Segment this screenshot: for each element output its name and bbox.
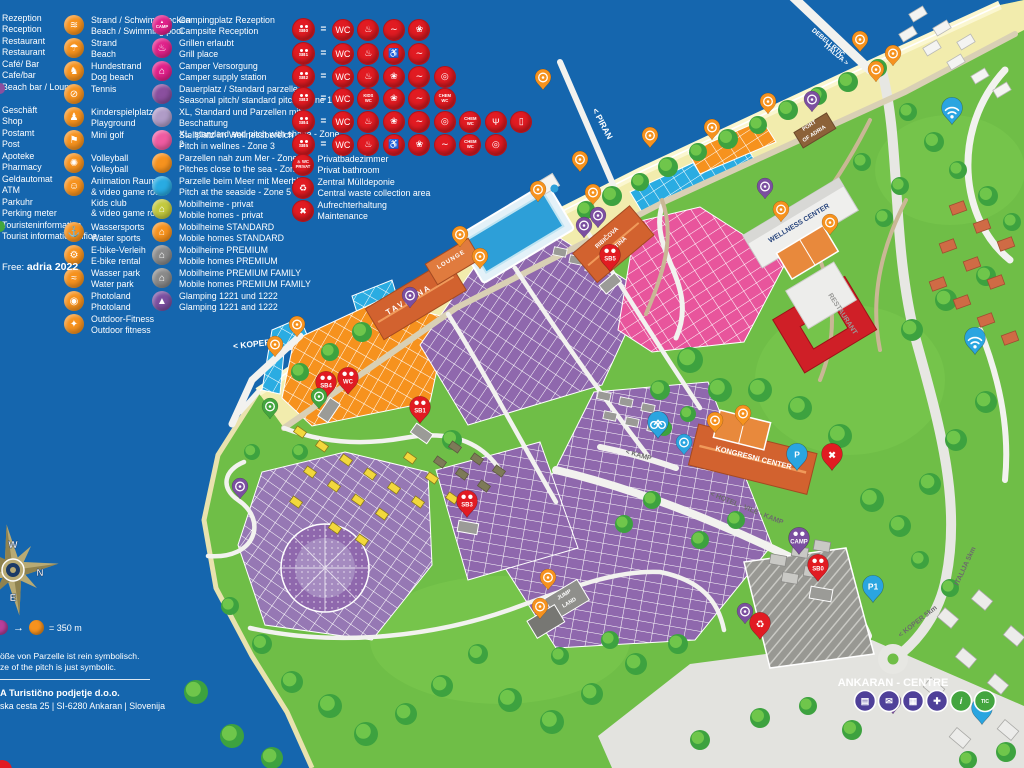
sanitary-row-sb2: SB2=WC♨❀∼◎ bbox=[292, 65, 456, 88]
big-tent bbox=[281, 524, 369, 612]
compass-w: W bbox=[8, 540, 18, 551]
dog-beach-icon: ♞ bbox=[64, 61, 84, 81]
wash-icon: ❀ bbox=[383, 111, 405, 133]
legend-item-label: Zentral Mülldeponie Central waste collec… bbox=[318, 177, 468, 199]
water-sports-icon: ⚓ bbox=[64, 222, 84, 242]
zone1-icon bbox=[152, 84, 172, 104]
wc-icon: WC bbox=[332, 19, 354, 41]
equals-sign: = bbox=[321, 139, 327, 150]
legend-item-waste-collection: ♻Zentral Mülldeponie Central waste colle… bbox=[292, 177, 468, 199]
legend-item-label: Glamping 1221 und 1222 Glamping 1221 and… bbox=[179, 291, 344, 313]
camp-map-page: < PIRAN< KOPERDEBELI RTIČITALIJA >PORTOF… bbox=[0, 0, 1024, 768]
legend-item-maintenance: ✖Aufrechterhaltung Maintenance bbox=[292, 200, 468, 222]
wc-icon: WC bbox=[332, 88, 354, 110]
svg-text:SB3: SB3 bbox=[461, 503, 473, 509]
waste-collection-icon: ♻ bbox=[292, 177, 314, 199]
laundry-icon: ◎ bbox=[434, 66, 456, 88]
svg-text:✖: ✖ bbox=[828, 450, 836, 461]
svg-text:WC: WC bbox=[343, 380, 354, 386]
legend-item-label: Aufrechterhaltung Maintenance bbox=[318, 200, 468, 222]
wash-icon: ❀ bbox=[383, 88, 405, 110]
private-bathroom-icon: ♨ WCPRIVAT bbox=[292, 154, 314, 176]
sanitary-row-sb3: SB3=WCKIDSWC❀∼CHEMWC bbox=[292, 87, 456, 110]
zone4-icon bbox=[152, 153, 172, 173]
mh-premium-family-icon: ⌂ bbox=[152, 268, 172, 288]
sanitary-row-sb0: SB0=WC♨∼❀ bbox=[292, 18, 430, 41]
svg-text:SB5: SB5 bbox=[604, 257, 616, 263]
svg-text:✉: ✉ bbox=[885, 696, 893, 706]
pharmacy-icon: ✚ bbox=[927, 691, 948, 712]
kids-club-icon: ☺ bbox=[64, 176, 84, 196]
wc-icon: WC bbox=[332, 66, 354, 88]
sink-icon: ∼ bbox=[408, 66, 430, 88]
minigolf-icon: ⚑ bbox=[64, 130, 84, 150]
maintenance-icon: ✖ bbox=[292, 200, 314, 222]
compass-n: N bbox=[36, 568, 43, 579]
legend-item-label: Mobilheime PREMIUM Mobile homes PREMIUM bbox=[179, 245, 344, 267]
wc-icon: WC bbox=[332, 111, 354, 133]
legend-item-mh-premium-family: ⌂Mobilheime PREMIUM FAMILY Mobile homes … bbox=[152, 268, 344, 290]
legend-item-outdoor-fitness: ✦Outdoor-Fitness Outdoor fitness bbox=[64, 314, 256, 336]
sink-icon: ∼ bbox=[408, 111, 430, 133]
mh-privat-icon: ⌂ bbox=[152, 199, 172, 219]
svg-text:TIC: TIC bbox=[981, 699, 989, 705]
chem-icon: CHEMWC bbox=[459, 134, 481, 156]
map-label-ankaran-centre: ANKARAN - CENTRE bbox=[838, 677, 949, 689]
svg-text:SB1: SB1 bbox=[414, 409, 426, 415]
laundry-icon: ◎ bbox=[485, 134, 507, 156]
chem-icon: CHEMWC bbox=[434, 88, 456, 110]
legend-item-label: Mobilheime PREMIUM FAMILY Mobile homes P… bbox=[179, 268, 344, 290]
svg-text:P: P bbox=[794, 450, 800, 460]
chem-icon: CHEMWC bbox=[459, 111, 481, 133]
accessible-icon: ♿ bbox=[383, 134, 405, 156]
scale-indicator: → = 350 m bbox=[0, 620, 82, 635]
svg-text:▦: ▦ bbox=[909, 696, 918, 706]
svg-text:SB0: SB0 bbox=[812, 567, 824, 573]
sanitary-row-sb4: SB4=WC♨❀∼◎CHEMWCΨ▯ bbox=[292, 110, 532, 133]
sink-icon: ∼ bbox=[408, 43, 430, 65]
volleyball-icon: ✺ bbox=[64, 153, 84, 173]
legend-item-label: Mobilheime STANDARD Mobile homes STANDAR… bbox=[179, 222, 344, 244]
sb1-legend-pin: SB1 bbox=[292, 42, 315, 65]
zone2-icon bbox=[152, 107, 172, 127]
scale-arrow: → bbox=[13, 622, 24, 634]
equals-sign: = bbox=[321, 116, 327, 127]
company-name: A Turistično podjetje d.o.o. bbox=[0, 687, 120, 698]
company-address: ska cesta 25 | SI-6280 Ankaran | Sloveni… bbox=[0, 701, 165, 711]
legend-item-label: Privatbadezimmer Privat bathroom bbox=[318, 154, 468, 176]
svg-text:✚: ✚ bbox=[933, 696, 941, 706]
fridge-icon: ▯ bbox=[510, 111, 532, 133]
sb5-legend-pin: SB5 bbox=[292, 133, 315, 156]
svg-text:▤: ▤ bbox=[861, 696, 870, 706]
legend-item-mh-premium: ⌂Mobilheime PREMIUM Mobile homes PREMIUM bbox=[152, 245, 344, 267]
legend-item-glamping: ▲Glamping 1221 und 1222 Glamping 1221 an… bbox=[152, 291, 344, 313]
atm-icon: ▤ bbox=[855, 691, 876, 712]
scale-text: = 350 m bbox=[49, 623, 82, 633]
camper-supply-icon: ⌂ bbox=[152, 61, 172, 81]
wash-icon: ❀ bbox=[408, 134, 430, 156]
tic-icon: TIC bbox=[975, 691, 996, 712]
svg-text:P1: P1 bbox=[868, 582, 879, 592]
disclaimer-de: öße von Parzelle ist rein symbolisch. bbox=[0, 651, 139, 662]
mh-standard-icon: ⌂ bbox=[152, 222, 172, 242]
beach-pool-icon: ≋ bbox=[64, 15, 84, 35]
camp-reception-icon: ▲CAMP bbox=[152, 15, 172, 35]
shower-icon: ♨ bbox=[357, 19, 379, 41]
accessible-icon: ♿ bbox=[383, 43, 405, 65]
sb0-legend-pin: SB0 bbox=[292, 18, 315, 41]
wash-icon: ❀ bbox=[408, 19, 430, 41]
tennis-icon: ⊘ bbox=[64, 84, 84, 104]
photoland-icon: ◉ bbox=[64, 291, 84, 311]
outdoor-fitness-icon: ✦ bbox=[64, 314, 84, 334]
shower-icon: ♨ bbox=[357, 111, 379, 133]
disclaimer-en: ze of the pitch is just symbolic. bbox=[0, 662, 139, 673]
zone5-icon bbox=[152, 176, 172, 196]
legend-item-label: Outdoor-Fitness Outdoor fitness bbox=[91, 314, 256, 336]
scale-start-dot bbox=[0, 620, 8, 635]
kids-icon: KIDSWC bbox=[357, 88, 379, 110]
disclaimer: öße von Parzelle ist rein symbolisch. ze… bbox=[0, 651, 139, 673]
shop-icon: ▦ bbox=[903, 691, 924, 712]
sb2-legend-pin: SB2 bbox=[292, 65, 315, 88]
shower-icon: ♨ bbox=[357, 43, 379, 65]
wc-icon: WC bbox=[332, 134, 354, 156]
scale-end-dot bbox=[29, 620, 44, 635]
sink-icon: ∼ bbox=[434, 134, 456, 156]
wc-icon: WC bbox=[332, 43, 354, 65]
legend-item-mh-standard: ⌂Mobilheime STANDARD Mobile homes STANDA… bbox=[152, 222, 344, 244]
laundry-icon: ◎ bbox=[434, 111, 456, 133]
equals-sign: = bbox=[321, 71, 327, 82]
sink-icon: ∼ bbox=[408, 88, 430, 110]
glamping-icon: ▲ bbox=[152, 291, 172, 311]
sb4-legend-pin: SB4 bbox=[292, 110, 315, 133]
shower-icon: ♨ bbox=[357, 134, 379, 156]
mh-premium-icon: ⌂ bbox=[152, 245, 172, 265]
wash-icon: ❀ bbox=[383, 66, 405, 88]
compass-e: E bbox=[10, 593, 17, 604]
svg-text:♻: ♻ bbox=[756, 619, 765, 630]
sink-icon: ∼ bbox=[383, 19, 405, 41]
free-wifi-note: Free: adria 2022 bbox=[2, 261, 78, 273]
footer-divider bbox=[0, 679, 150, 680]
legend-item-private-bathroom: ♨ WCPRIVATPrivatbadezimmer Privat bathro… bbox=[292, 154, 468, 176]
sanitary-row-sb1: SB1=WC♨♿∼ bbox=[292, 42, 430, 65]
dish-icon: Ψ bbox=[485, 111, 507, 133]
post-icon: ✉ bbox=[879, 691, 900, 712]
sb3-legend-pin: SB3 bbox=[292, 87, 315, 110]
sanitary-row-sb5: SB5=WC♨♿❀∼CHEMWC◎ bbox=[292, 133, 507, 156]
equals-sign: = bbox=[321, 48, 327, 59]
grill-place-icon: ♨ bbox=[152, 38, 172, 58]
beach-umbrella-icon: ☂ bbox=[64, 38, 84, 58]
svg-text:CAMP: CAMP bbox=[790, 540, 808, 546]
equals-sign: = bbox=[321, 24, 327, 35]
shower-icon: ♨ bbox=[357, 66, 379, 88]
equals-sign: = bbox=[321, 93, 327, 104]
playground-icon: ♟ bbox=[64, 107, 84, 127]
info-icon: i bbox=[951, 691, 972, 712]
zone3-icon bbox=[152, 130, 172, 150]
